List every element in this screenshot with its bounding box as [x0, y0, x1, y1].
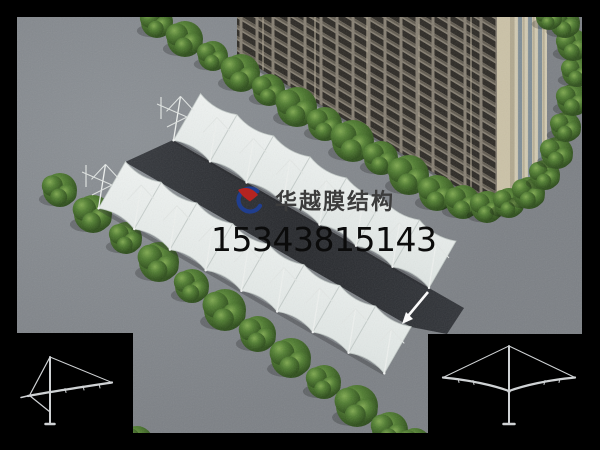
single-cantilever-profile-drawing	[0, 333, 133, 450]
rendering-canvas: 华越膜结构 15343815143	[0, 0, 600, 450]
detail-panel-left	[0, 333, 133, 450]
detail-panel-right	[428, 334, 600, 450]
double-cantilever-profile-drawing	[428, 334, 600, 450]
